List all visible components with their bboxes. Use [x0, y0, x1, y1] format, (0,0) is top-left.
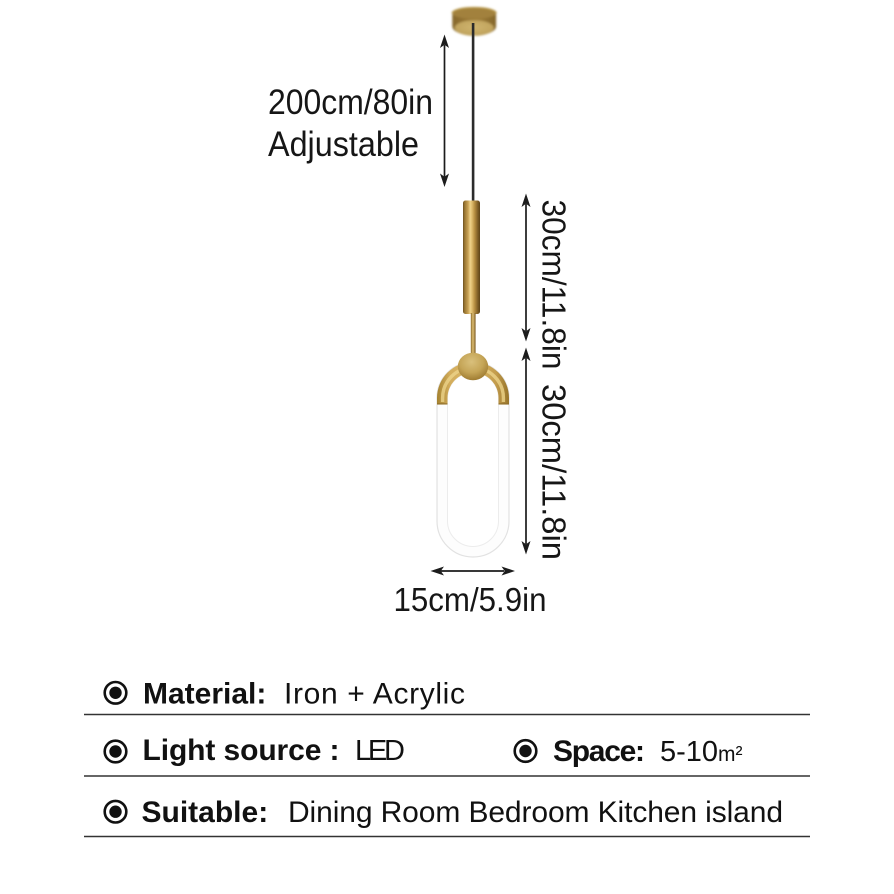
svg-text:Suitable:: Suitable:	[142, 796, 269, 829]
svg-text:Iron + Acrylic: Iron + Acrylic	[284, 678, 465, 711]
svg-text:Space:: Space:	[553, 735, 645, 768]
svg-text:Adjustable: Adjustable	[268, 125, 419, 164]
svg-text:Dining Room Bedroom Kitchen is: Dining Room Bedroom Kitchen island	[288, 796, 783, 829]
svg-text:30cm/11.8in: 30cm/11.8in	[535, 384, 572, 560]
svg-text:15cm/5.9in: 15cm/5.9in	[394, 581, 547, 618]
svg-text:Light source :: Light source :	[143, 734, 340, 767]
svg-text:LED: LED	[355, 735, 405, 767]
svg-text:30cm/11.8in: 30cm/11.8in	[535, 200, 572, 370]
svg-text:5-10m²: 5-10m²	[660, 736, 743, 768]
svg-text:200cm/80in: 200cm/80in	[268, 83, 433, 122]
svg-text:Material:: Material:	[143, 678, 266, 711]
